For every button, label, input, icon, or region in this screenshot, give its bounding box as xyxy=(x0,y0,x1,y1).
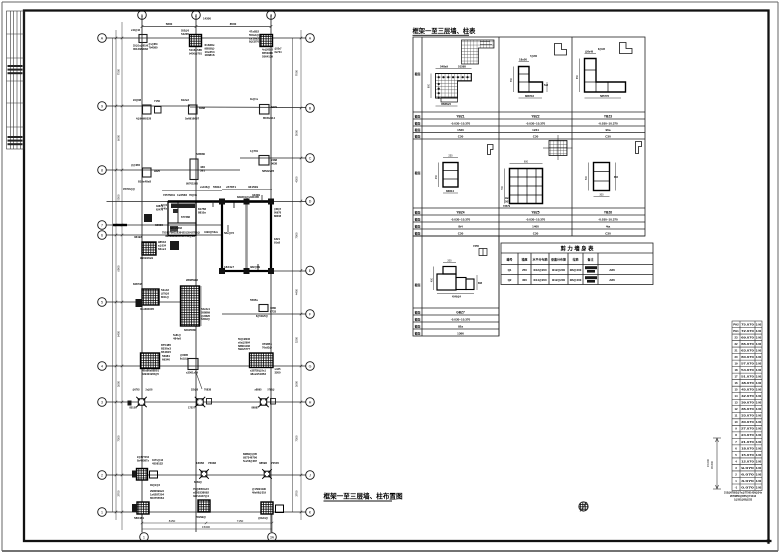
svg-text:7150: 7150 xyxy=(237,519,244,523)
svg-text:YBZ1: YBZ1 xyxy=(456,115,464,119)
svg-text:3.00: 3.00 xyxy=(756,342,762,346)
svg-text:51595: 51595 xyxy=(458,65,466,69)
svg-text:58x@72: 58x@72 xyxy=(224,231,234,235)
svg-text:72.070: 72.070 xyxy=(741,329,754,333)
svg-text:868716: 868716 xyxy=(525,94,534,98)
svg-text:500: 500 xyxy=(585,175,588,180)
svg-text:3.00: 3.00 xyxy=(756,453,762,457)
svg-text:11: 11 xyxy=(735,414,738,418)
svg-text:截面: 截面 xyxy=(415,231,421,236)
svg-text:73575631: 73575631 xyxy=(163,193,175,197)
svg-text:剪 力 墙 身 表: 剪 力 墙 身 表 xyxy=(561,245,595,253)
svg-text:3.00: 3.00 xyxy=(756,375,762,379)
svg-text:3: 3 xyxy=(270,13,272,17)
svg-text:1: 1 xyxy=(101,510,103,514)
svg-text:-0.030~10.370: -0.030~10.370 xyxy=(598,218,618,222)
svg-text:C30: C30 xyxy=(533,135,539,139)
svg-text:200: 200 xyxy=(447,260,452,263)
svg-text:54.070: 54.070 xyxy=(741,368,754,372)
svg-text:3.00: 3.00 xyxy=(756,329,762,333)
svg-text:截面: 截面 xyxy=(415,127,421,132)
svg-text:@8x49: @8x49 xyxy=(585,50,593,54)
svg-text:700: 700 xyxy=(501,185,504,190)
svg-text:4: 4 xyxy=(101,364,103,368)
svg-text:01x684005: 01x684005 xyxy=(140,307,154,311)
svg-text:1834x7: 1834x7 xyxy=(224,265,234,269)
svg-text:PH1: PH1 xyxy=(733,329,739,333)
svg-text:14300: 14300 xyxy=(203,17,211,21)
svg-text:3.00: 3.00 xyxy=(756,472,762,476)
svg-text:截面: 截面 xyxy=(415,317,421,322)
svg-text:-0.030~10.370: -0.030~10.370 xyxy=(598,122,618,126)
svg-text:3A: 3A xyxy=(270,535,275,539)
svg-text:586481: 586481 xyxy=(134,516,144,520)
svg-text:7: 7 xyxy=(101,223,103,227)
svg-text:16: 16 xyxy=(734,381,738,385)
svg-text:02606: 02606 xyxy=(155,223,163,227)
svg-text:18: 18 xyxy=(734,368,738,372)
svg-text:484x6: 484x6 xyxy=(173,336,181,340)
svg-text:3.00: 3.00 xyxy=(756,446,762,450)
svg-text:3.070: 3.070 xyxy=(741,479,754,483)
svg-text:A86: A86 xyxy=(609,278,615,282)
svg-text:截面: 截面 xyxy=(415,331,421,336)
svg-text:19: 19 xyxy=(734,362,738,366)
svg-text:Q2: Q2 xyxy=(508,278,512,282)
svg-text:0x@1x: 0x@1x xyxy=(250,97,258,101)
svg-text:8733: 8733 xyxy=(270,309,276,313)
svg-text:10: 10 xyxy=(734,420,738,424)
svg-text:92a: 92a xyxy=(458,325,463,329)
svg-text:拉筋: 拉筋 xyxy=(572,257,578,262)
svg-text:75.070: 75.070 xyxy=(741,322,754,326)
svg-text:8@53425@: 8@53425@ xyxy=(256,314,268,318)
svg-text:86887: 86887 xyxy=(252,406,259,410)
svg-text:76038: 76038 xyxy=(208,461,216,465)
svg-text:3.00: 3.00 xyxy=(756,485,762,489)
svg-text:83814: 83814 xyxy=(446,189,454,193)
svg-text:63.070: 63.070 xyxy=(741,348,754,352)
svg-text:15: 15 xyxy=(734,388,738,392)
svg-text:GBZ7: GBZ7 xyxy=(456,311,465,315)
svg-text:C30: C30 xyxy=(458,232,464,236)
svg-text:550: 550 xyxy=(510,77,513,82)
svg-text:36@2@3: 36@2@3 xyxy=(150,483,160,487)
svg-text:H: H xyxy=(309,400,312,404)
svg-text:23@88: 23@88 xyxy=(133,98,141,102)
svg-text:2: 2 xyxy=(195,13,197,17)
svg-text:62473: 62473 xyxy=(156,207,163,211)
svg-text:9450@781: 9450@781 xyxy=(189,51,202,55)
svg-text:69340: 69340 xyxy=(162,357,170,361)
svg-text:4@96965328: 4@96965328 xyxy=(136,117,151,121)
svg-text:78@0x: 78@0x xyxy=(189,193,197,197)
svg-text:5x8: 5x8 xyxy=(544,83,548,87)
svg-text:YBZ2: YBZ2 xyxy=(531,115,539,119)
svg-text:16658: 16658 xyxy=(196,461,204,465)
svg-text:331509: 331509 xyxy=(248,185,258,189)
svg-text:3.00: 3.00 xyxy=(756,466,762,470)
svg-text:8545x514: 8545x514 xyxy=(263,116,275,120)
svg-text:Q1: Q1 xyxy=(508,268,512,272)
svg-text:6600: 6600 xyxy=(117,134,121,141)
svg-text:8t4: 8t4 xyxy=(458,225,463,229)
svg-text:3.00: 3.00 xyxy=(756,479,762,483)
svg-text:截面: 截面 xyxy=(415,324,421,329)
svg-text:3.00: 3.00 xyxy=(756,433,762,437)
svg-text:D: D xyxy=(309,199,312,203)
svg-text:24.070: 24.070 xyxy=(741,433,754,437)
svg-text:5565x: 5565x xyxy=(250,298,258,302)
svg-text:8@3276: 8@3276 xyxy=(249,40,259,44)
svg-text:36.070: 36.070 xyxy=(741,407,754,411)
svg-text:21: 21 xyxy=(734,348,738,352)
svg-text:YBZ5: YBZ5 xyxy=(531,211,539,215)
svg-text:4ta: 4ta xyxy=(606,225,611,229)
svg-text:3: 3 xyxy=(101,400,103,404)
svg-text:框架一至三层墙、柱表: 框架一至三层墙、柱表 xyxy=(413,26,477,35)
svg-text:15.000: 15.000 xyxy=(706,458,710,466)
svg-text:450: 450 xyxy=(431,277,434,282)
svg-text:3.00: 3.00 xyxy=(756,401,762,405)
svg-text:30.070: 30.070 xyxy=(741,420,754,424)
svg-text:0013389083: 0013389083 xyxy=(133,47,148,51)
svg-text:6270: 6270 xyxy=(271,105,277,109)
svg-text:22: 22 xyxy=(734,342,738,346)
svg-text:Φ12@200: Φ12@200 xyxy=(552,278,566,282)
svg-text:J: J xyxy=(309,473,311,477)
svg-text:808: 808 xyxy=(478,281,482,285)
svg-text:327x1937@4: 327x1937@4 xyxy=(193,494,209,498)
svg-text:4493@53xx: 4493@53xx xyxy=(204,230,218,234)
svg-text:21.070: 21.070 xyxy=(741,440,754,444)
svg-text:C30: C30 xyxy=(605,232,611,236)
svg-text:455746@@: 455746@@ xyxy=(123,187,135,191)
svg-text:300: 300 xyxy=(599,194,604,197)
svg-text:编号: 编号 xyxy=(506,257,512,262)
svg-text:300: 300 xyxy=(522,278,527,282)
svg-text:28085982: 28085982 xyxy=(186,278,198,282)
svg-text:截面: 截面 xyxy=(415,170,421,175)
svg-text:x10@43: x10@43 xyxy=(131,28,140,32)
svg-text:60.070: 60.070 xyxy=(741,355,754,359)
svg-text:3.00: 3.00 xyxy=(756,459,762,463)
svg-text:Φ12@200: Φ12@200 xyxy=(552,268,566,272)
svg-text:6: 6 xyxy=(101,233,103,237)
svg-text:YBZ4: YBZ4 xyxy=(456,211,464,215)
svg-text:1@781: 1@781 xyxy=(250,149,258,153)
svg-text:8: 8 xyxy=(101,168,103,172)
svg-text:794580: 794580 xyxy=(149,45,158,49)
svg-text:3.00: 3.00 xyxy=(756,355,762,359)
svg-text:7300: 7300 xyxy=(295,435,299,442)
svg-text:8x45587x: 8x45587x xyxy=(137,458,149,462)
svg-text:6900: 6900 xyxy=(117,265,121,272)
svg-text:1520: 1520 xyxy=(457,128,464,132)
svg-text:3.00: 3.00 xyxy=(756,368,762,372)
svg-text:截面: 截面 xyxy=(415,282,421,287)
svg-text:66.070: 66.070 xyxy=(741,342,754,346)
svg-text:截面: 截面 xyxy=(415,114,421,119)
svg-text:5000: 5000 xyxy=(295,129,299,136)
svg-text:C30: C30 xyxy=(605,135,611,139)
svg-text:51.070: 51.070 xyxy=(741,375,754,379)
svg-text:@8x31@: @8x31@ xyxy=(258,516,268,520)
svg-text:C30: C30 xyxy=(458,135,464,139)
svg-text:6659@: 6659@ xyxy=(194,480,202,484)
svg-text:70838: 70838 xyxy=(204,388,211,392)
svg-text:1x6566: 1x6566 xyxy=(177,193,187,197)
svg-text:653755564: 653755564 xyxy=(150,496,164,500)
svg-text:27.070: 27.070 xyxy=(741,427,754,431)
svg-text:截面: 截面 xyxy=(415,121,421,126)
svg-text:水平分布筋: 水平分布筋 xyxy=(532,257,547,262)
svg-text:42.070: 42.070 xyxy=(741,394,754,398)
svg-text:3700: 3700 xyxy=(295,490,299,497)
svg-text:3.00: 3.00 xyxy=(756,440,762,444)
svg-text:5800: 5800 xyxy=(166,22,173,26)
svg-text:5798@: 5798@ xyxy=(268,388,275,392)
svg-text:-0.030~10.370: -0.030~10.370 xyxy=(526,218,546,222)
svg-text:5200: 5200 xyxy=(295,336,299,343)
svg-text:12: 12 xyxy=(734,407,738,411)
svg-text:9325: 9325 xyxy=(154,169,160,173)
svg-text:183816: 183816 xyxy=(205,53,215,57)
svg-text:8011@: 8011@ xyxy=(161,295,169,299)
svg-text:96a: 96a xyxy=(605,128,610,132)
svg-text:585776: 585776 xyxy=(600,94,609,98)
svg-text:4558122: 4558122 xyxy=(152,461,163,465)
svg-text:677386: 677386 xyxy=(181,215,190,219)
svg-text:7500: 7500 xyxy=(117,68,121,75)
svg-text:9638: 9638 xyxy=(271,161,277,165)
svg-text:5x6916697: 5x6916697 xyxy=(185,117,199,121)
svg-text:8500: 8500 xyxy=(230,22,237,26)
svg-text:3.00: 3.00 xyxy=(756,407,762,411)
svg-text:0586x5: 0586x5 xyxy=(441,102,451,106)
svg-text:812x2: 812x2 xyxy=(181,98,189,102)
svg-text:15.070: 15.070 xyxy=(741,453,754,457)
svg-text:Φ6@400: Φ6@400 xyxy=(570,268,582,272)
svg-text:4300: 4300 xyxy=(295,176,299,183)
svg-text:48.070: 48.070 xyxy=(741,381,754,385)
svg-text:-0.030~10.370: -0.030~10.370 xyxy=(451,218,471,222)
svg-text:429401965@5: 429401965@5 xyxy=(142,372,159,376)
svg-text:62045580: 62045580 xyxy=(184,328,196,332)
svg-text:49x66@319: 49x66@319 xyxy=(252,490,266,494)
svg-text:548x9: 548x9 xyxy=(440,65,448,69)
svg-text:C: C xyxy=(309,156,312,160)
svg-text:6.070: 6.070 xyxy=(741,472,754,476)
svg-text:850: 850 xyxy=(576,74,579,79)
svg-text:52602@: 52602@ xyxy=(201,317,210,321)
svg-text:7000: 7000 xyxy=(295,69,299,76)
svg-text:x8895: x8895 xyxy=(255,388,262,392)
svg-text:8810x: 8810x xyxy=(198,210,206,214)
svg-text:截面: 截面 xyxy=(415,210,421,215)
svg-text:495x80x884x12411@82: 495x80x884x12411@82 xyxy=(165,234,195,238)
svg-text:备注: 备注 xyxy=(586,257,593,262)
svg-text:-1: -1 xyxy=(735,485,738,489)
svg-text:9: 9 xyxy=(101,104,103,108)
svg-text:507: 507 xyxy=(505,199,510,203)
svg-text:14: 14 xyxy=(734,394,738,398)
svg-text:57.070: 57.070 xyxy=(741,362,754,366)
svg-text:G: G xyxy=(309,364,312,368)
svg-text:48xx951853: 48xx951853 xyxy=(250,372,266,376)
svg-text:-0.030~10.370: -0.030~10.370 xyxy=(526,122,546,126)
svg-text:Φ12@200: Φ12@200 xyxy=(533,268,547,272)
svg-text:PH2: PH2 xyxy=(733,322,739,326)
svg-text:截面: 截面 xyxy=(415,134,421,139)
svg-text:1: 1 xyxy=(143,535,145,539)
svg-text:08596: 08596 xyxy=(259,461,267,465)
svg-text:23: 23 xyxy=(734,335,738,339)
svg-text:450: 450 xyxy=(435,174,438,179)
svg-text:C30: C30 xyxy=(533,232,539,236)
svg-text:250: 250 xyxy=(448,155,453,158)
svg-text:-0.030~10.370: -0.030~10.370 xyxy=(451,318,471,322)
svg-text:8488: 8488 xyxy=(199,106,205,110)
svg-text:76x93@: 76x93@ xyxy=(262,345,272,349)
svg-text:20: 20 xyxy=(734,355,738,359)
svg-text:5564139: 5564139 xyxy=(262,54,273,58)
svg-text:7150: 7150 xyxy=(154,99,160,103)
svg-text:3.00: 3.00 xyxy=(756,381,762,385)
svg-text:1: 1 xyxy=(141,13,143,17)
svg-text:8@945: 8@945 xyxy=(598,47,605,51)
svg-text:1234: 1234 xyxy=(532,128,539,132)
svg-text:3.00: 3.00 xyxy=(756,414,762,418)
svg-text:3.00: 3.00 xyxy=(756,420,762,424)
svg-text:-0.030~10.370: -0.030~10.370 xyxy=(451,122,471,126)
svg-text:55299@: 55299@ xyxy=(196,515,206,519)
svg-text:848748: 848748 xyxy=(133,282,142,286)
svg-text:A86: A86 xyxy=(609,268,615,272)
svg-text:85156: 85156 xyxy=(130,406,137,410)
svg-text:34309: 34309 xyxy=(252,193,260,197)
svg-text:391: 391 xyxy=(200,168,205,172)
svg-text:垂直分布筋: 垂直分布筋 xyxy=(551,257,566,262)
svg-text:3.00: 3.00 xyxy=(756,362,762,366)
svg-text:55813: 55813 xyxy=(213,185,221,189)
svg-text:框架一至三层墙、柱布置图: 框架一至三层墙、柱布置图 xyxy=(324,492,404,501)
svg-text:5: 5 xyxy=(101,300,103,304)
svg-text:墙厚: 墙厚 xyxy=(521,257,527,262)
svg-text:5xx56@287: 5xx56@287 xyxy=(243,459,257,463)
svg-text:3600: 3600 xyxy=(117,380,121,387)
svg-text:@@4852: @@4852 xyxy=(131,163,140,167)
svg-text:3700: 3700 xyxy=(117,490,121,497)
svg-text:39.070: 39.070 xyxy=(741,401,754,405)
svg-text:9.070: 9.070 xyxy=(741,466,754,470)
svg-text:4549@4: 4549@4 xyxy=(452,295,461,299)
svg-text:0.070: 0.070 xyxy=(741,485,754,489)
svg-text:4400: 4400 xyxy=(295,288,299,295)
svg-text:1366: 1366 xyxy=(457,332,464,336)
svg-text:2: 2 xyxy=(101,473,103,477)
svg-text:18.070: 18.070 xyxy=(741,446,754,450)
svg-text:7@262: 7@262 xyxy=(530,54,537,58)
svg-text:x57871: x57871 xyxy=(226,185,236,189)
svg-text:截面: 截面 xyxy=(415,224,421,229)
svg-text:3.00: 3.00 xyxy=(756,394,762,398)
svg-text:88015832: 88015832 xyxy=(170,226,182,230)
svg-text:325@8: 325@8 xyxy=(191,388,198,392)
svg-text:5500: 5500 xyxy=(117,194,121,201)
svg-text:3.00: 3.00 xyxy=(756,335,762,339)
svg-text:88208: 88208 xyxy=(274,214,281,218)
svg-text:8150: 8150 xyxy=(169,519,176,523)
svg-text:截面: 截面 xyxy=(415,310,421,315)
svg-text:15300: 15300 xyxy=(202,525,210,529)
svg-text:1400: 1400 xyxy=(532,225,539,229)
svg-text:8x@@@: 8x@@@ xyxy=(180,356,188,360)
svg-text:1@351@85@233: 1@351@85@233 xyxy=(734,498,752,502)
svg-text:Φ14@200: Φ14@200 xyxy=(533,278,547,282)
svg-text:17257: 17257 xyxy=(188,406,195,410)
svg-text:xx106@: xx106@ xyxy=(200,185,210,189)
svg-text:6x724: 6x724 xyxy=(275,50,282,54)
svg-text:818x48x8: 818x48x8 xyxy=(138,180,151,184)
svg-text:13: 13 xyxy=(734,401,738,405)
svg-text:70545: 70545 xyxy=(271,461,279,465)
svg-text:7300: 7300 xyxy=(117,435,121,442)
svg-text:528580: 528580 xyxy=(196,152,205,156)
svg-text:18x50: 18x50 xyxy=(519,58,527,62)
svg-text:3.00: 3.00 xyxy=(756,322,762,326)
svg-text:990916x9: 990916x9 xyxy=(140,256,153,260)
svg-text:7000: 7000 xyxy=(295,232,299,239)
svg-text:17: 17 xyxy=(734,375,738,379)
svg-text:600: 600 xyxy=(428,83,431,88)
svg-text:852: 852 xyxy=(614,175,618,179)
svg-text:截面: 截面 xyxy=(415,71,421,76)
svg-text:YBZ3: YBZ3 xyxy=(604,115,612,119)
svg-text:600: 600 xyxy=(524,161,529,164)
svg-text:58522x78: 58522x78 xyxy=(262,169,274,173)
svg-text:7355: 7355 xyxy=(473,244,479,248)
svg-text:62xx4: 62xx4 xyxy=(158,247,166,251)
svg-text:3.00: 3.00 xyxy=(756,427,762,431)
svg-text:截面: 截面 xyxy=(415,217,421,222)
svg-text:599x5777: 599x5777 xyxy=(238,347,250,351)
svg-text:12.070: 12.070 xyxy=(741,459,754,463)
svg-text:95701585: 95701585 xyxy=(186,182,198,186)
svg-text:Φ6@400: Φ6@400 xyxy=(570,278,582,282)
svg-text:3.00: 3.00 xyxy=(756,388,762,392)
svg-text:YBZ6: YBZ6 xyxy=(604,211,612,215)
svg-text:3600: 3600 xyxy=(295,380,299,387)
svg-text:@6763: @6763 xyxy=(133,388,140,392)
svg-text:6400: 6400 xyxy=(117,330,121,337)
svg-text:3200: 3200 xyxy=(275,370,281,374)
svg-text:3.00: 3.00 xyxy=(756,348,762,352)
svg-text:73579: 73579 xyxy=(503,204,510,208)
svg-text:45.600: 45.600 xyxy=(710,460,714,468)
svg-text:45.070: 45.070 xyxy=(741,388,754,392)
svg-text:91x8: 91x8 xyxy=(274,240,280,244)
svg-text:54235: 54235 xyxy=(181,32,189,36)
svg-text:36193: 36193 xyxy=(134,235,142,239)
svg-text:2x@05: 2x@05 xyxy=(146,388,153,392)
svg-text:382@99: 382@99 xyxy=(250,265,260,269)
svg-text:69.070: 69.070 xyxy=(741,335,754,339)
svg-text:250: 250 xyxy=(522,268,527,272)
svg-text:33.070: 33.070 xyxy=(741,414,754,418)
